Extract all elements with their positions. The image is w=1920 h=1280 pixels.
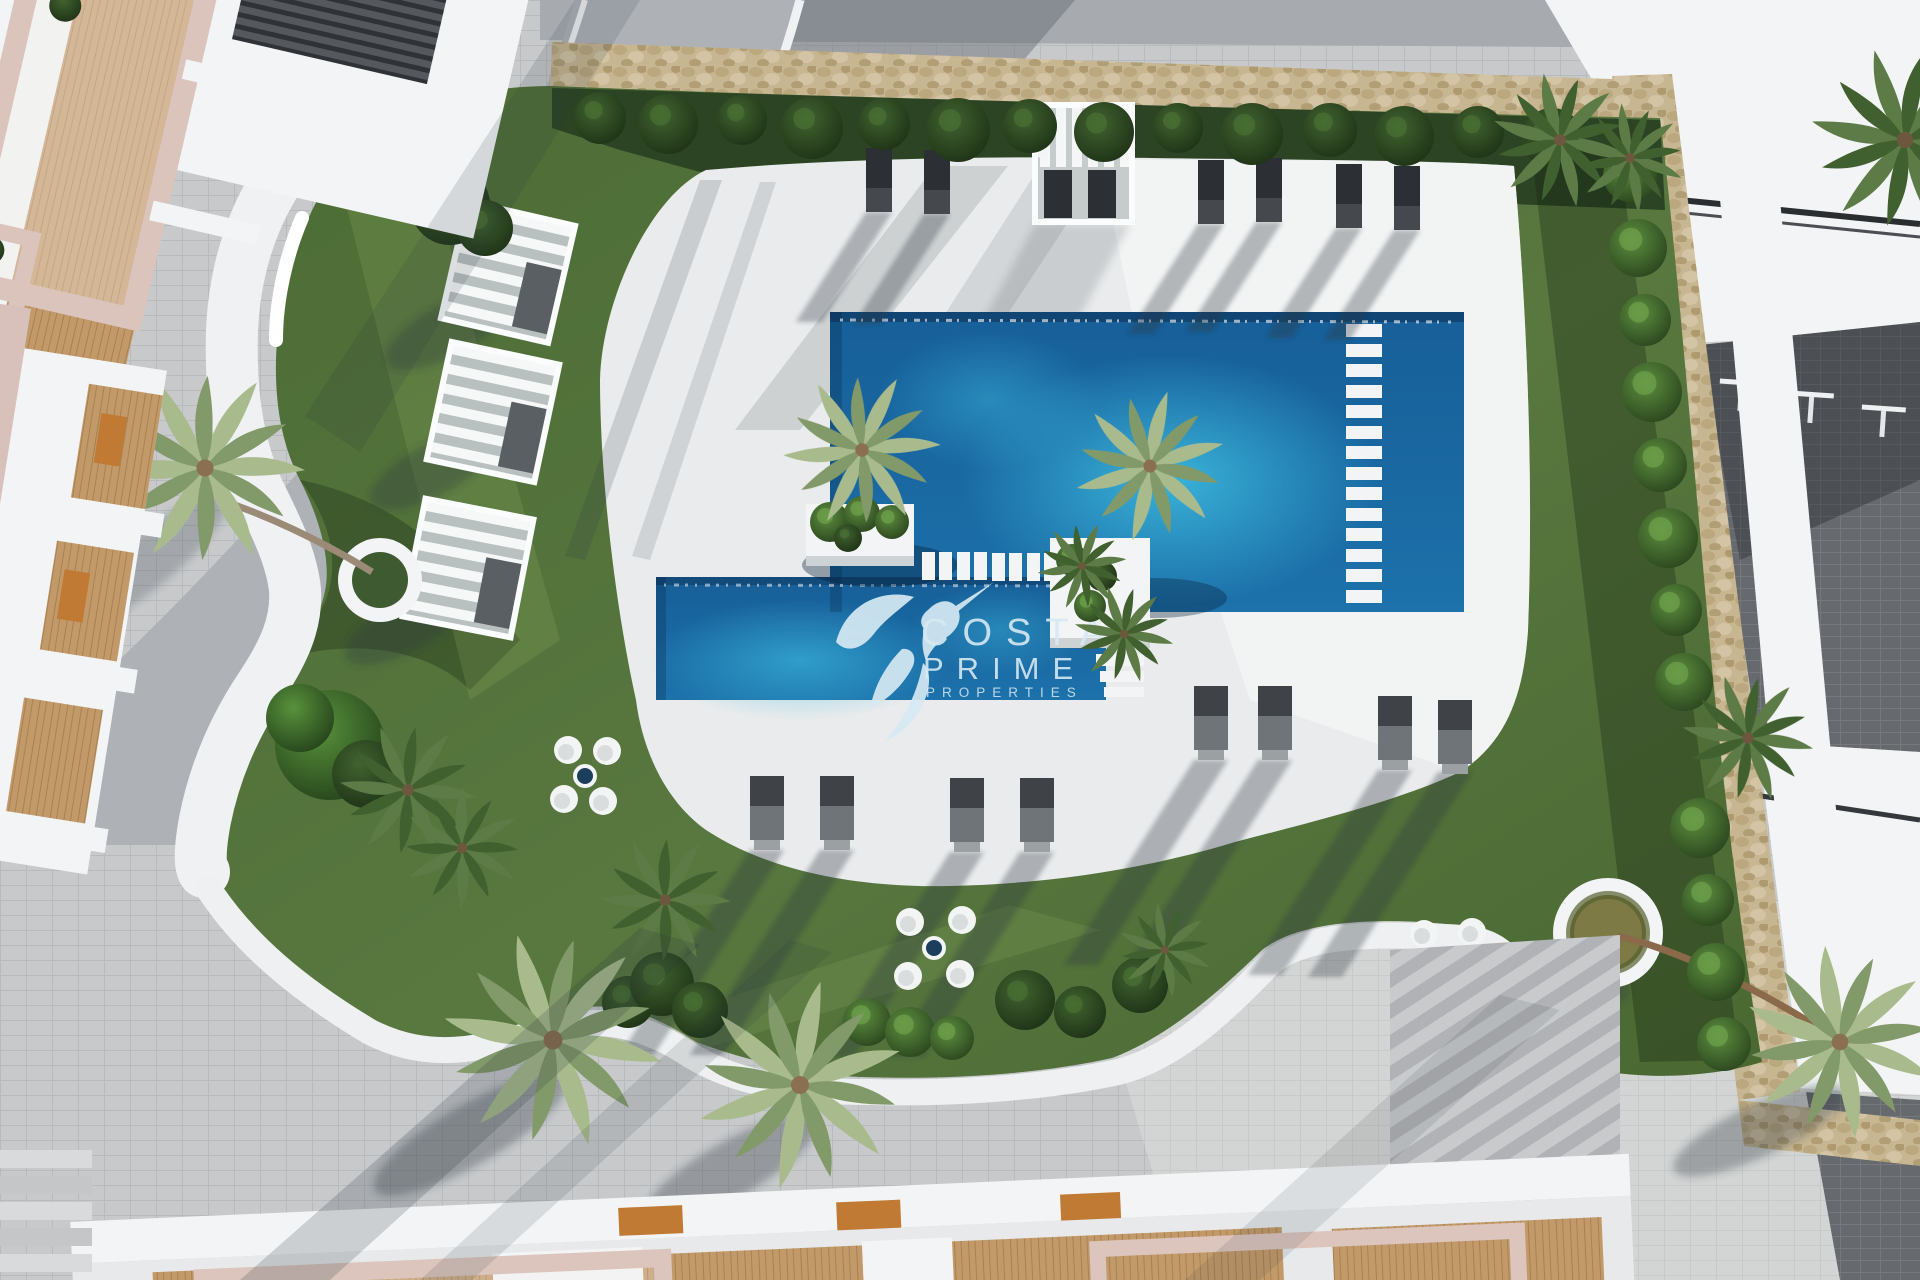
sun-lounger xyxy=(950,778,984,852)
sun-lounger xyxy=(1394,166,1420,230)
terrace-lounger xyxy=(836,1200,901,1231)
aerial-render: COSTA PRIME PROPERTIES xyxy=(0,0,1920,1280)
sun-lounger xyxy=(1256,158,1282,222)
terrace-lounger xyxy=(1060,1192,1121,1221)
brand-word-3: PROPERTIES xyxy=(926,685,1083,700)
sun-lounger xyxy=(750,776,784,850)
sun-lounger xyxy=(1194,686,1228,760)
sun-lounger xyxy=(866,148,892,212)
sun-lounger xyxy=(820,776,854,850)
terrace-lounger xyxy=(618,1205,683,1236)
cabana xyxy=(403,499,534,638)
sun-lounger xyxy=(1020,778,1054,852)
coffee-table xyxy=(926,940,942,956)
sun-lounger xyxy=(1198,160,1224,224)
brand-word-2: PRIME xyxy=(923,651,1086,686)
cabana xyxy=(427,342,560,482)
sun-lounger xyxy=(1378,696,1412,770)
sun-lounger xyxy=(1258,686,1292,760)
sun-lounger xyxy=(1438,700,1472,774)
sun-lounger xyxy=(1336,164,1362,228)
coffee-table xyxy=(577,768,593,784)
